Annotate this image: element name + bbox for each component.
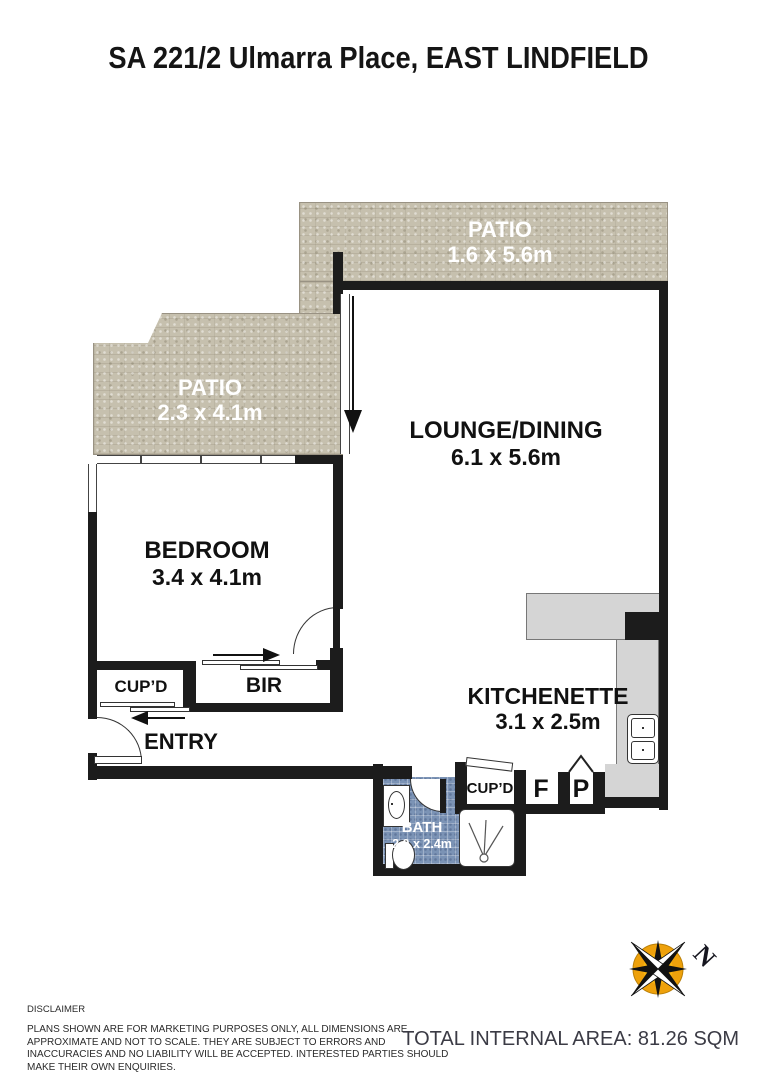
basin-tap-dot (391, 803, 393, 805)
total-internal-area: TOTAL INTERNAL AREA: 81.26 SQM (402, 1028, 739, 1051)
fridge-label: F (533, 775, 548, 803)
entry-direction-arrow-line (352, 296, 354, 412)
kitchenette-label: KITCHENETTE 3.1 x 2.5m (468, 684, 629, 734)
bath-basin (388, 791, 405, 819)
bedroom-door-arc (293, 607, 338, 654)
room-name: BEDROOM (144, 537, 269, 564)
bir-slide-arrow-line (213, 654, 265, 656)
bedroom-door-leaf (333, 607, 340, 655)
room-name: KITCHENETTE (468, 683, 629, 709)
bir-label: BIR (246, 674, 282, 698)
room-dims: 3.1 x 2.5m (468, 710, 629, 735)
patio-left-label: PATIO 2.3 x 4.1m (157, 376, 262, 425)
wall (88, 512, 97, 719)
wall (88, 766, 412, 779)
window-mullion (260, 456, 262, 463)
window-mullion (140, 456, 142, 463)
shower-drain-icon (460, 810, 513, 865)
sink-drain-dot (642, 749, 644, 751)
cupboard-slide-arrow-line (147, 717, 185, 719)
room-name: PATIO (468, 217, 532, 242)
entry-label: ENTRY (144, 730, 218, 755)
bath-label: BATH 2.0 x 2.4m (392, 820, 452, 851)
compass-north-label: N (688, 939, 720, 973)
room-name: PATIO (178, 375, 242, 400)
wall (88, 661, 196, 670)
kitchen-corner-counter (605, 764, 659, 798)
window-mullion (200, 456, 202, 463)
wall (333, 455, 343, 609)
entry-direction-arrow-head (344, 410, 362, 433)
compass-rose-icon: N (610, 925, 720, 1020)
wall (316, 660, 343, 670)
wall (333, 281, 668, 290)
room-dims: 1.6 x 5.6m (447, 243, 552, 268)
entry-door-leaf (94, 756, 142, 764)
wall (373, 764, 383, 876)
cupboard-slide-arrow-head (131, 711, 148, 725)
bath-door-leaf (440, 779, 446, 813)
wall (659, 282, 668, 810)
bir-sliding-panel (240, 665, 318, 670)
shower (459, 809, 515, 867)
room-name: BATH (402, 819, 443, 836)
sink-drain-dot (642, 727, 644, 729)
disclaimer-title: DISCLAIMER (27, 1004, 457, 1015)
room-dims: 3.4 x 4.1m (144, 565, 269, 591)
room-dims: 2.3 x 4.1m (157, 401, 262, 426)
kitchen-appliance-block (625, 612, 662, 640)
patio-top-label: PATIO 1.6 x 5.6m (447, 218, 552, 267)
bedroom-label: BEDROOM 3.4 x 4.1m (144, 538, 269, 591)
bedroom-side-window (88, 464, 97, 512)
room-name: LOUNGE/DINING (409, 417, 602, 444)
kitchen-cupboard-label: CUP’D (467, 781, 514, 798)
lounge-label: LOUNGE/DINING 6.1 x 5.6m (409, 418, 602, 471)
floorplan-page: SA 221/2 Ulmarra Place, EAST LINDFIELD (0, 0, 757, 1080)
disclaimer-body: PLANS SHOWN ARE FOR MARKETING PURPOSES O… (27, 1024, 457, 1074)
wall (600, 797, 668, 808)
room-dims: 6.1 x 5.6m (409, 445, 602, 471)
room-dims: 2.0 x 2.4m (392, 837, 452, 851)
pantry-label: P (573, 775, 590, 803)
kitchen-cupboard-door (465, 757, 513, 772)
wall (188, 703, 343, 712)
pantry-doors-icon (566, 752, 596, 774)
disclaimer-block: DISCLAIMER PLANS SHOWN ARE FOR MARKETING… (27, 1004, 457, 1074)
page-title: SA 221/2 Ulmarra Place, EAST LINDFIELD (45, 40, 711, 76)
wall (514, 770, 526, 876)
hall-cupboard-label: CUP’D (115, 677, 168, 696)
bir-slide-arrow-head (263, 648, 280, 662)
bedroom-window (97, 455, 295, 464)
